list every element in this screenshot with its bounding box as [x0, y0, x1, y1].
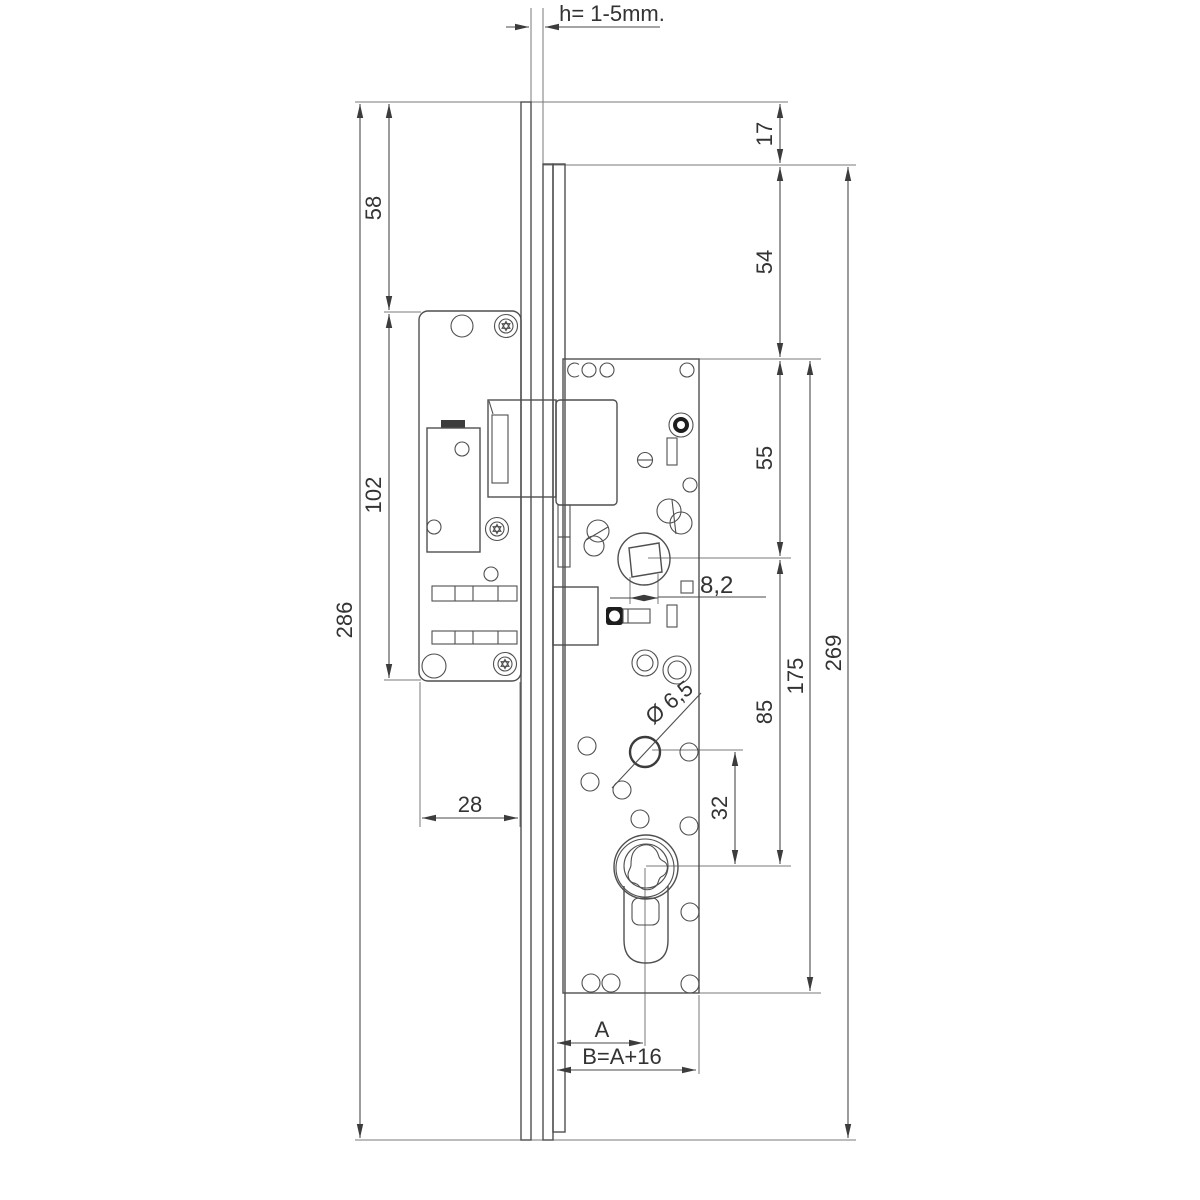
dim-label-B: B=A+16	[582, 1044, 662, 1069]
dim-label-175: 175	[783, 658, 808, 695]
lock-case	[553, 359, 701, 993]
lock-faceplate	[543, 164, 565, 1140]
dim-label-55: 55	[752, 446, 777, 470]
keeper-bar	[432, 631, 517, 644]
roller-pins	[584, 499, 692, 556]
dim-label-58: 58	[361, 196, 386, 220]
dim-label-102: 102	[361, 477, 386, 514]
case-hole	[683, 478, 697, 492]
dim-label-17: 17	[752, 122, 777, 146]
dim-line-8-2	[610, 597, 766, 598]
strike-plate	[419, 311, 521, 681]
notch-arc	[568, 363, 579, 377]
slot	[667, 438, 677, 465]
extension-lines	[355, 8, 856, 1140]
latch-pin	[558, 505, 570, 537]
torx-screw-icon	[486, 518, 509, 541]
dimension-lines	[360, 27, 848, 1138]
dim-label-h-gap: h= 1-5mm.	[559, 1, 665, 26]
strike-keeper-box	[427, 420, 480, 552]
dim-label-32: 32	[707, 796, 732, 820]
case-holes	[578, 737, 699, 993]
dim-label-28: 28	[458, 792, 482, 817]
square-symbol-icon	[681, 581, 693, 593]
dim-label-269: 269	[821, 635, 846, 672]
torx-screw-icon	[494, 653, 517, 676]
strike-hole	[451, 315, 473, 337]
strike-hole	[422, 654, 446, 678]
dim-label-8-2: 8,2	[700, 572, 733, 599]
slot	[667, 605, 677, 627]
door-edge-plate	[521, 102, 531, 1140]
deadbolt-pocket	[553, 587, 598, 645]
dim-label-6-5: Ø 6,5	[641, 675, 698, 729]
din-slider	[606, 607, 650, 625]
drawing-canvas: h= 1-5mm. 17 54 55 85 32 175 269 58 102 …	[0, 0, 1200, 1200]
slotted-screw-icon	[637, 453, 653, 468]
dim-label-85: 85	[752, 700, 777, 724]
technical-drawing-lock: h= 1-5mm. 17 54 55 85 32 175 269 58 102 …	[0, 0, 1200, 1200]
latch-pin	[558, 537, 570, 567]
dim-label-286: 286	[332, 602, 357, 639]
dim-label-54: 54	[752, 250, 777, 274]
cylinder-cam-profile	[628, 845, 667, 890]
strike-hole	[484, 567, 498, 581]
keeper-bar	[432, 586, 517, 601]
torx-screw-icon	[495, 315, 518, 338]
dim-label-A: A	[595, 1017, 610, 1042]
hub-ring	[669, 413, 693, 437]
euro-cylinder-cutout	[614, 835, 678, 963]
dimension-labels: h= 1-5mm. 17 54 55 85 32 175 269 58 102 …	[332, 1, 846, 1069]
spindle-follower	[618, 533, 670, 585]
